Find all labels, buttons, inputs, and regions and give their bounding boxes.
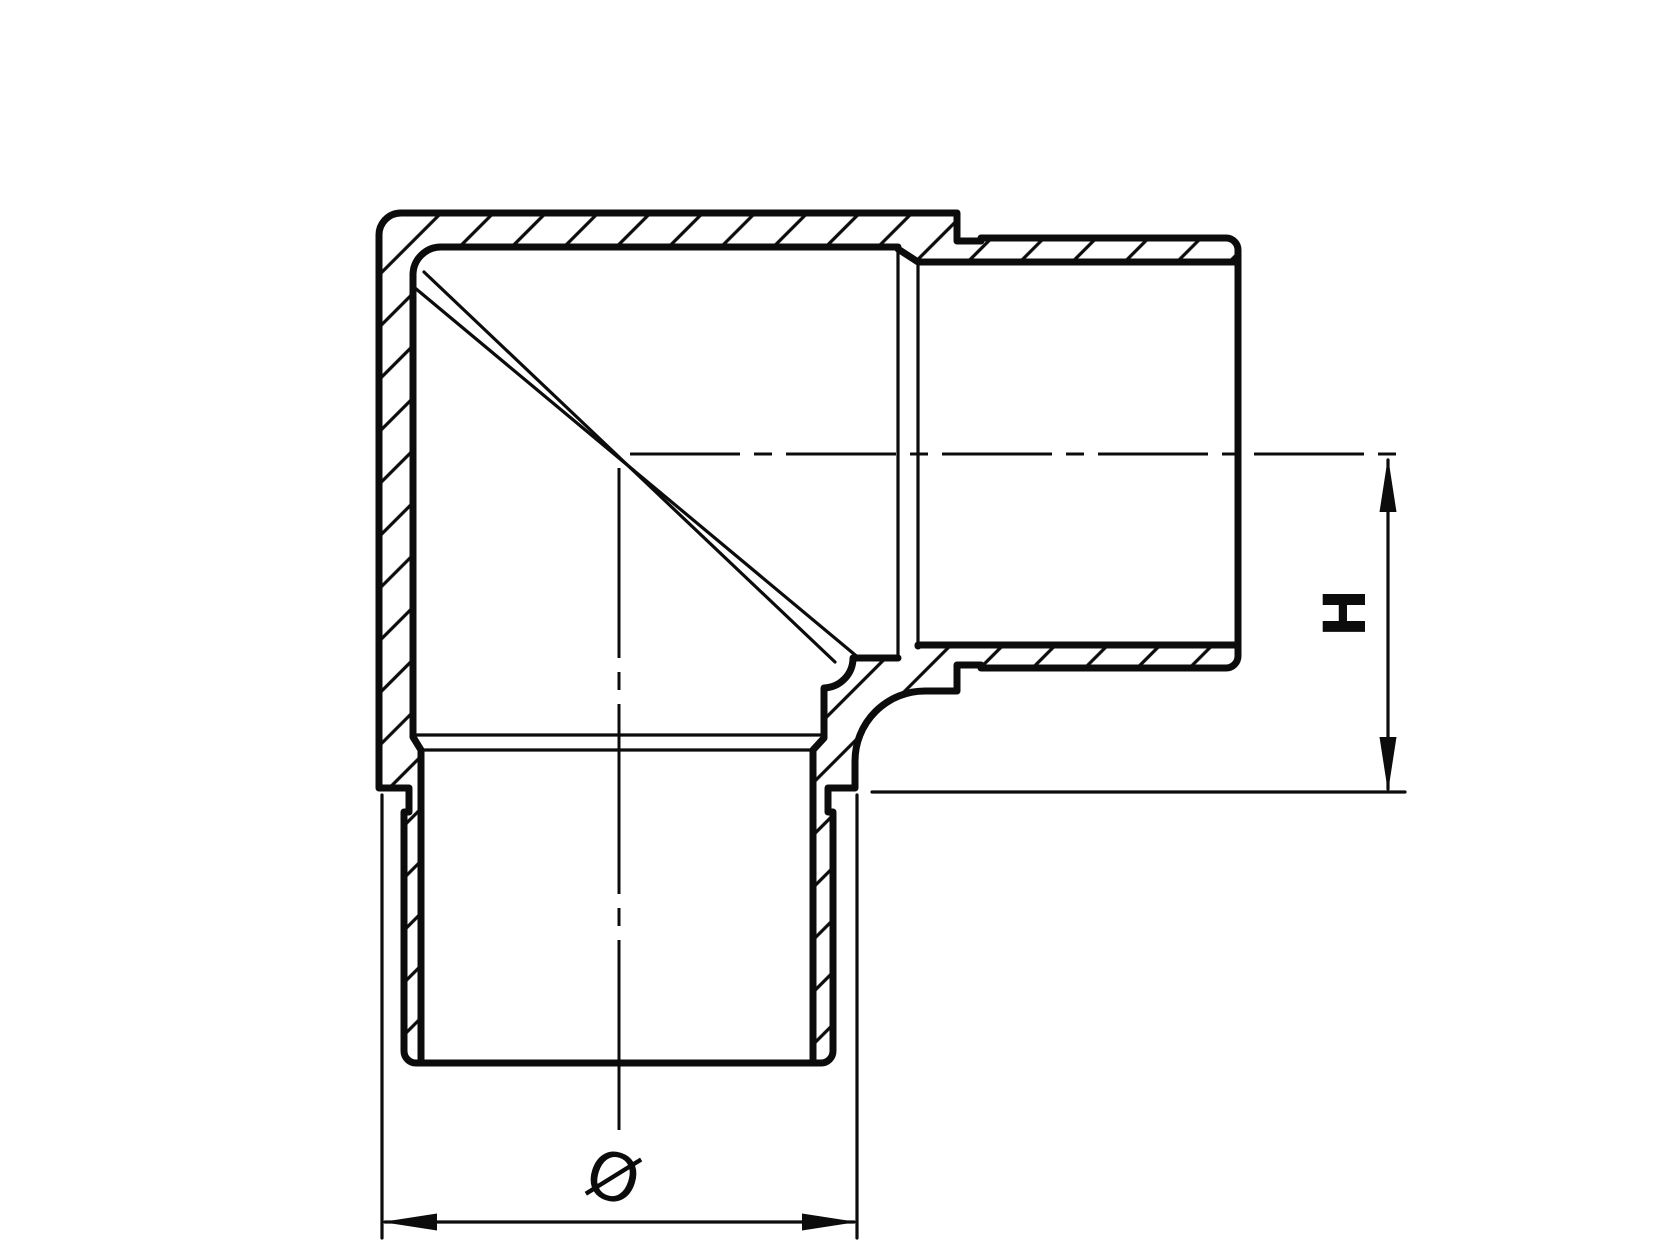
h-dim-arrow-bottom: [1380, 737, 1397, 792]
h-dim-arrow-top: [1380, 457, 1397, 512]
diameter-dim-arrow-left: [382, 1214, 437, 1231]
diameter-dim-arrow-right: [802, 1214, 857, 1231]
elbow-fitting-section-drawing: H Ø: [0, 0, 1680, 1260]
h-dimension-label: H: [1311, 589, 1379, 638]
technical-drawing-canvas: H Ø: [0, 0, 1680, 1260]
diameter-dimension-label: Ø: [576, 1133, 649, 1222]
miter-seam-line-2: [424, 272, 835, 662]
